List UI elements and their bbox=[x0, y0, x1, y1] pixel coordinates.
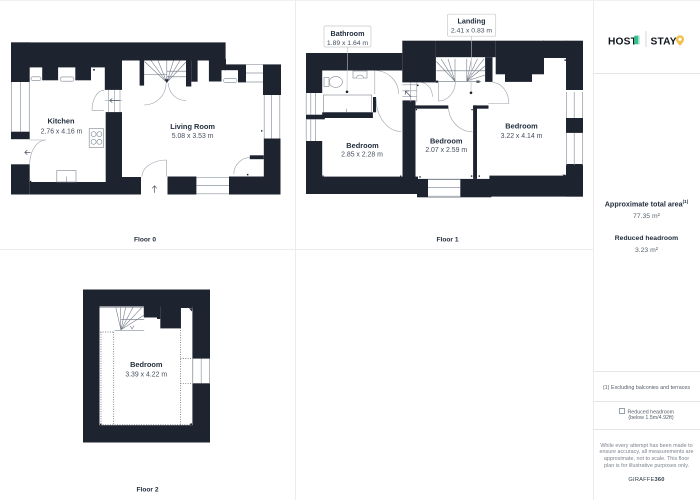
svg-text:3.39 x 4.22 m: 3.39 x 4.22 m bbox=[125, 371, 167, 378]
svg-text:Bathroom: Bathroom bbox=[331, 29, 365, 38]
svg-text:5.08 x 3.53 m: 5.08 x 3.53 m bbox=[172, 133, 214, 140]
svg-text:Bedroom: Bedroom bbox=[505, 122, 538, 131]
svg-text:2.41 x 0.83 m: 2.41 x 0.83 m bbox=[451, 28, 493, 35]
svg-text:HOST: HOST bbox=[608, 37, 638, 48]
svg-text:Bedroom: Bedroom bbox=[346, 141, 379, 150]
svg-text:Kitchen: Kitchen bbox=[47, 117, 75, 126]
svg-text:Floor 2: Floor 2 bbox=[137, 486, 159, 493]
svg-text:Living Room: Living Room bbox=[170, 122, 215, 131]
svg-text:1.89 x 1.64 m: 1.89 x 1.64 m bbox=[327, 40, 369, 47]
svg-text:2.85 x 2.28 m: 2.85 x 2.28 m bbox=[341, 152, 383, 159]
svg-text:2.76 x 4.16 m: 2.76 x 4.16 m bbox=[41, 128, 83, 135]
svg-text:STAY: STAY bbox=[651, 37, 677, 48]
svg-text:2.07 x 2.59 m: 2.07 x 2.59 m bbox=[425, 147, 467, 154]
svg-text:3.22 x 4.14 m: 3.22 x 4.14 m bbox=[501, 133, 543, 140]
svg-text:Floor 1: Floor 1 bbox=[437, 237, 459, 244]
svg-text:Landing: Landing bbox=[458, 17, 486, 26]
svg-text:Floor 0: Floor 0 bbox=[134, 237, 156, 244]
svg-text:Bedroom: Bedroom bbox=[130, 360, 163, 369]
svg-text:Bedroom: Bedroom bbox=[430, 137, 463, 146]
